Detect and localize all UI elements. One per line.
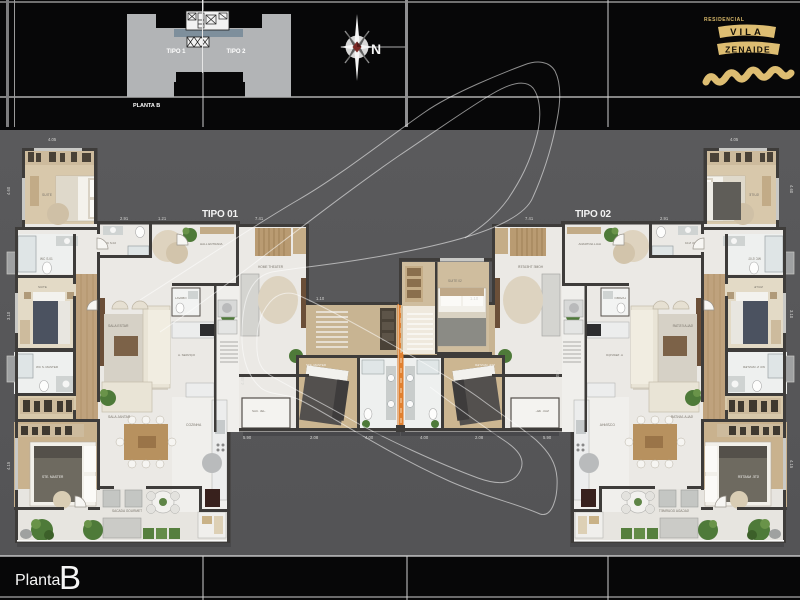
svg-text:Planta: Planta xyxy=(15,572,60,589)
svg-text:1.10: 1.10 xyxy=(316,296,325,301)
svg-text:SUITE: SUITE xyxy=(42,193,53,197)
svg-text:7.41: 7.41 xyxy=(255,216,264,221)
svg-text:B: B xyxy=(59,559,81,596)
svg-text:TIPO 1: TIPO 1 xyxy=(166,49,186,55)
svg-text:TIPO 2: TIPO 2 xyxy=(226,49,246,55)
svg-text:PLANTA B: PLANTA B xyxy=(133,103,160,109)
svg-text:SUITE 02: SUITE 02 xyxy=(448,279,462,283)
svg-text:2.08: 2.08 xyxy=(475,435,484,440)
svg-text:4.00: 4.00 xyxy=(420,435,429,440)
svg-text:SUITE: SUITE xyxy=(38,285,47,289)
svg-text:4.05: 4.05 xyxy=(48,137,57,142)
svg-text:4.00: 4.00 xyxy=(365,435,374,440)
svg-text:SACADA GOURMET: SACADA GOURMET xyxy=(112,509,142,513)
svg-text:RESIDENCIAL: RESIDENCIAL xyxy=(704,17,745,23)
svg-text:5.90: 5.90 xyxy=(243,435,252,440)
svg-text:ZENAIDE: ZENAIDE xyxy=(725,45,771,55)
svg-text:VILA: VILA xyxy=(730,27,764,38)
svg-text:HALL ENTRADA: HALL ENTRADA xyxy=(200,242,223,246)
svg-text:5.90: 5.90 xyxy=(543,435,552,440)
svg-text:2.08: 2.08 xyxy=(310,435,319,440)
svg-text:WC S.01: WC S.01 xyxy=(40,257,53,261)
svg-text:STE. MASTER: STE. MASTER xyxy=(306,363,327,367)
svg-text:LAVABO: LAVABO xyxy=(175,296,187,300)
svg-text:2.91: 2.91 xyxy=(660,216,669,221)
svg-text:TIPO 02: TIPO 02 xyxy=(575,209,611,220)
svg-text:SALA ESTAR: SALA ESTAR xyxy=(108,324,129,328)
svg-text:3.10: 3.10 xyxy=(789,310,794,319)
svg-text:4.60: 4.60 xyxy=(6,186,11,195)
svg-text:4.15: 4.15 xyxy=(789,460,794,469)
svg-text:N: N xyxy=(371,41,381,57)
svg-text:7.41: 7.41 xyxy=(525,216,534,221)
svg-text:A. SERVIÇO: A. SERVIÇO xyxy=(178,353,196,357)
svg-text:3.10: 3.10 xyxy=(6,311,11,320)
svg-text:4.60: 4.60 xyxy=(789,185,794,194)
svg-text:TIPO 01: TIPO 01 xyxy=(202,209,238,220)
svg-text:4.45: 4.45 xyxy=(555,370,560,379)
svg-text:COZINHA: COZINHA xyxy=(186,423,202,427)
svg-text:4.05: 4.05 xyxy=(730,137,739,142)
svg-text:2.91: 2.91 xyxy=(120,216,129,221)
svg-text:4.45: 4.45 xyxy=(240,376,245,385)
svg-text:1.10: 1.10 xyxy=(470,296,479,301)
svg-text:4.15: 4.15 xyxy=(6,461,11,470)
svg-text:STE. MASTER: STE. MASTER xyxy=(42,475,64,479)
svg-text:HOME THEATER: HOME THEATER xyxy=(258,265,284,269)
svg-text:SAC. JEL.: SAC. JEL. xyxy=(252,409,266,413)
svg-text:SALA JANTAR: SALA JANTAR xyxy=(108,415,131,419)
svg-text:WC S. MASTER: WC S. MASTER xyxy=(36,365,59,369)
svg-text:1.21: 1.21 xyxy=(158,216,167,221)
